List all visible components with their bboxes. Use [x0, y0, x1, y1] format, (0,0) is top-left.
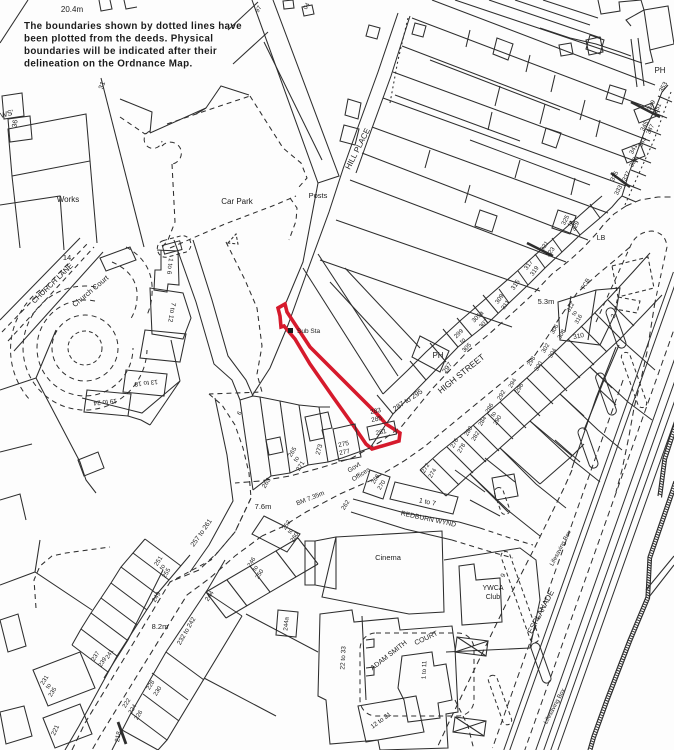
svg-text:8.2m: 8.2m: [152, 622, 169, 631]
svg-text:Car Park: Car Park: [221, 197, 254, 206]
svg-text:Cinema: Cinema: [375, 553, 402, 562]
svg-text:5.3m: 5.3m: [538, 297, 555, 306]
svg-text:been plotted from the deeds. P: been plotted from the deeds. Physical: [24, 34, 213, 45]
svg-text:20.4m: 20.4m: [61, 5, 84, 14]
svg-text:boundaries will be indicated a: boundaries will be indicated after their: [24, 46, 217, 57]
svg-text:Sub Sta: Sub Sta: [297, 328, 321, 335]
svg-text:PH: PH: [654, 66, 665, 75]
svg-text:22 to 33: 22 to 33: [339, 646, 347, 670]
svg-text:LB: LB: [597, 235, 606, 242]
svg-text:The boundaries shown by dotted: The boundaries shown by dotted lines hav…: [24, 21, 242, 32]
svg-text:Club: Club: [486, 594, 501, 601]
svg-text:244a: 244a: [282, 616, 290, 631]
svg-text:YWCA: YWCA: [483, 585, 504, 592]
svg-text:7.6m: 7.6m: [255, 502, 272, 511]
svg-text:1 to 11: 1 to 11: [421, 660, 429, 679]
svg-text:delineation on the Ordnance Ma: delineation on the Ordnance Map.: [24, 59, 193, 70]
svg-text:Posts: Posts: [309, 191, 328, 200]
